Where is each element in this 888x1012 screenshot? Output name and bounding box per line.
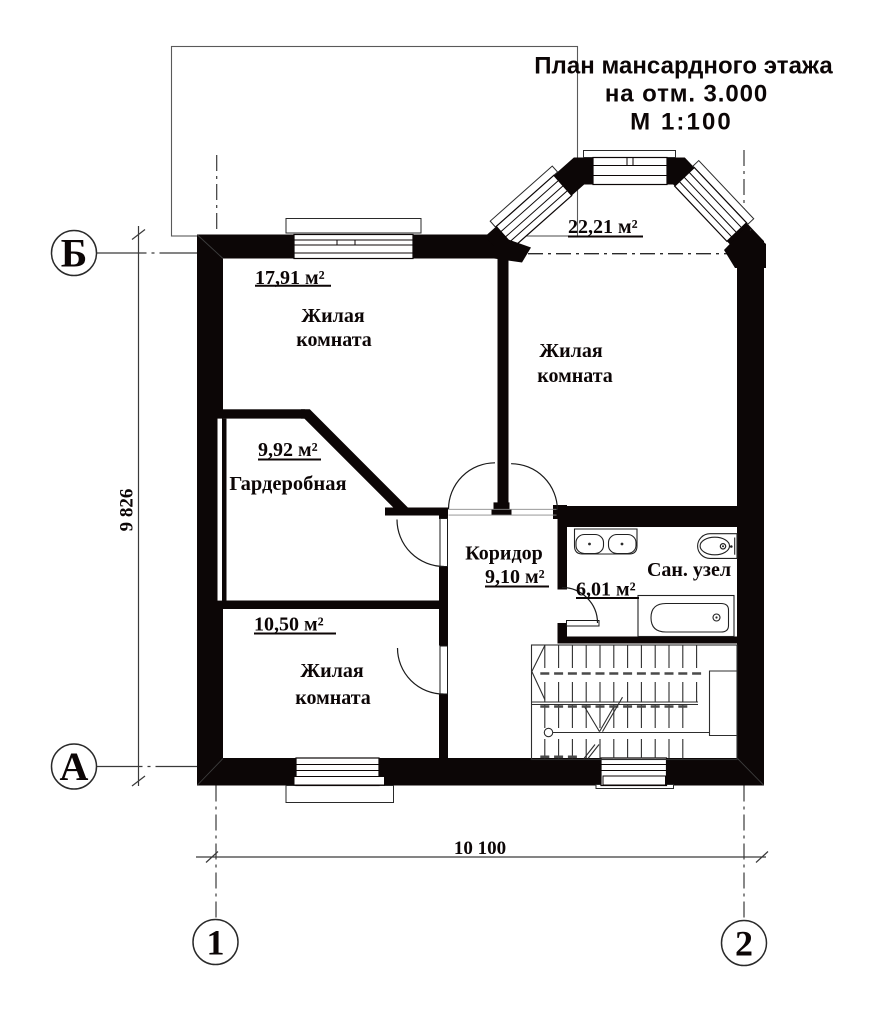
svg-text:22,21 м²: 22,21 м² [568, 216, 638, 238]
svg-text:на отм. 3.000: на отм. 3.000 [605, 81, 768, 108]
svg-text:Сан. узел: Сан. узел [647, 559, 731, 581]
svg-text:1: 1 [207, 923, 225, 963]
svg-text:План мансардного этажа: План мансардного этажа [534, 53, 833, 80]
svg-text:комната: комната [295, 687, 371, 709]
svg-text:Гардеробная: Гардеробная [229, 473, 346, 495]
svg-text:комната: комната [296, 329, 372, 351]
svg-text:10,50 м²: 10,50 м² [254, 614, 324, 636]
svg-text:Б: Б [61, 231, 87, 276]
svg-text:Жилая: Жилая [301, 305, 365, 327]
svg-text:комната: комната [537, 365, 613, 387]
svg-text:10 100: 10 100 [454, 838, 506, 859]
svg-text:9 826: 9 826 [117, 489, 138, 532]
svg-text:А: А [60, 744, 89, 789]
svg-text:2: 2 [735, 924, 753, 964]
svg-text:Жилая: Жилая [539, 340, 603, 362]
svg-text:Жилая: Жилая [300, 660, 364, 682]
svg-text:М 1:100: М 1:100 [630, 109, 733, 136]
svg-text:9,10 м²: 9,10 м² [485, 566, 545, 588]
svg-text:Коридор: Коридор [465, 543, 542, 565]
svg-text:9,92 м²: 9,92 м² [258, 439, 318, 461]
